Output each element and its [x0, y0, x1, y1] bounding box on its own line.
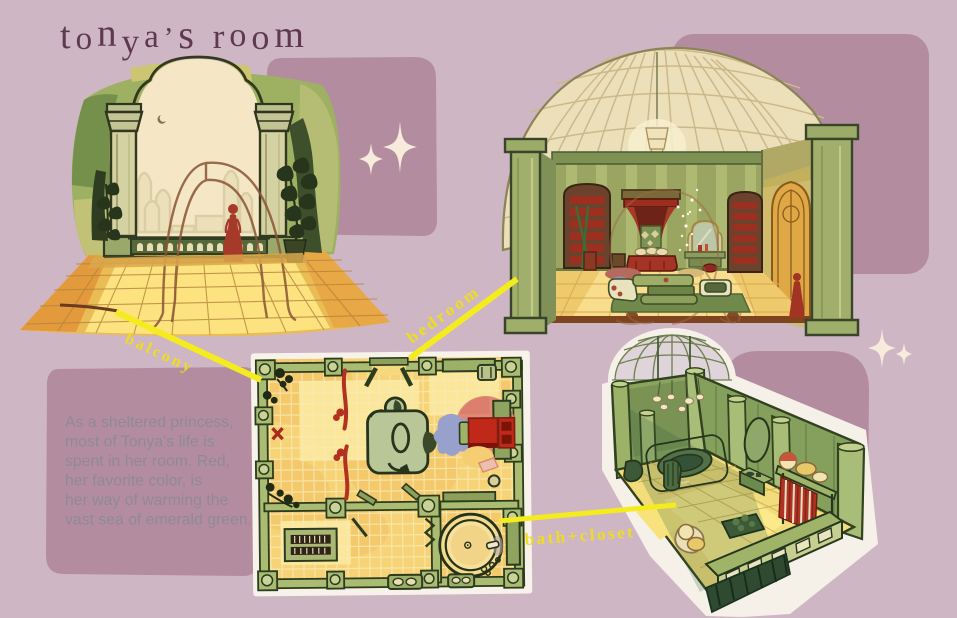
svg-text:most of Tonya’s life is: most of Tonya’s life is	[65, 434, 215, 451]
svg-text:As a sheltered princess,: As a sheltered princess,	[65, 414, 234, 431]
svg-text:her way of warming the: her way of warming the	[65, 492, 229, 509]
svg-text:tonya’s room: tonya’s room	[60, 12, 309, 61]
svg-text:spent in her room. Red,: spent in her room. Red,	[65, 453, 230, 470]
svg-text:vast sea of emerald green.: vast sea of emerald green.	[65, 512, 252, 529]
svg-text:her favorite color, is: her favorite color, is	[65, 473, 202, 490]
